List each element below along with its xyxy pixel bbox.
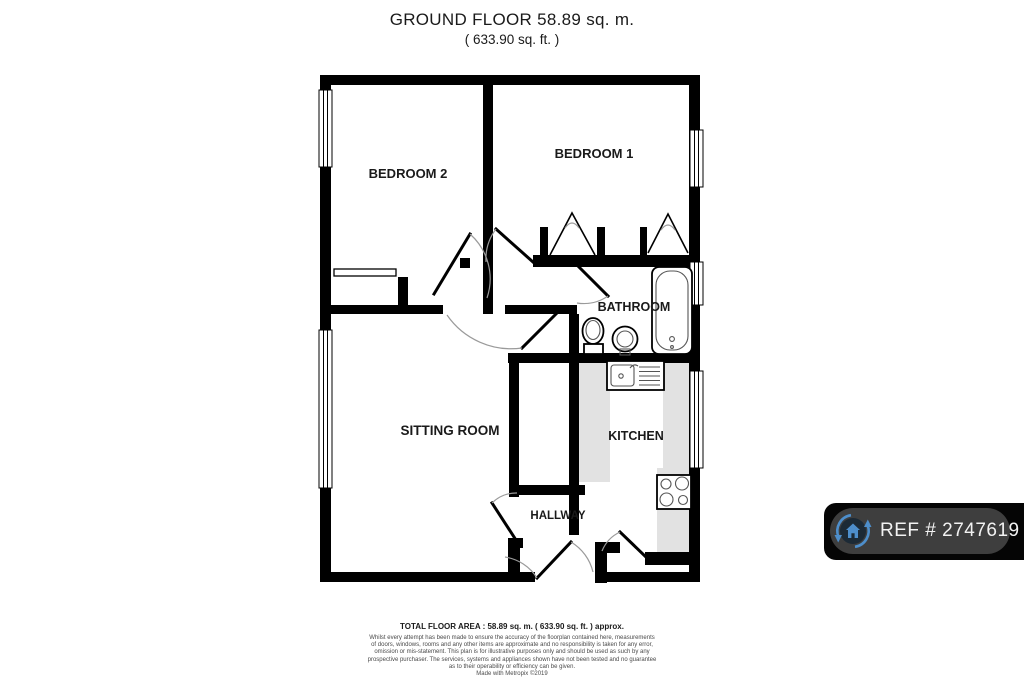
disclaimer-line: of doors, windows, rooms and any other i… bbox=[0, 642, 1024, 649]
doors bbox=[434, 229, 646, 578]
floorplan-page: BEDROOM 2 BEDROOM 1 BATHROOM SITTING ROO… bbox=[0, 0, 1024, 682]
wardrobe-icons bbox=[550, 213, 688, 255]
sitting-room-label: SITTING ROOM bbox=[401, 423, 500, 438]
house-sync-icon bbox=[833, 511, 873, 551]
toilet-icon bbox=[583, 318, 604, 354]
bathroom-door bbox=[577, 266, 608, 304]
window-kitchen bbox=[690, 371, 703, 468]
window-bedroom2 bbox=[319, 90, 332, 167]
disclaimer-line: Made with Metropix ©2019 bbox=[0, 671, 1024, 678]
sink-unit-icon bbox=[607, 361, 664, 390]
disclaimer-line: prospective purchaser. The services, sys… bbox=[0, 657, 1024, 664]
disclaimer: Whilst every attempt has been made to en… bbox=[0, 635, 1024, 678]
disclaimer-line: Whilst every attempt has been made to en… bbox=[0, 635, 1024, 642]
sitting-room-hall-door bbox=[492, 493, 517, 540]
sitting-room-inner-door bbox=[447, 312, 558, 349]
hob-icon bbox=[657, 475, 691, 509]
window-sitting-room bbox=[319, 330, 332, 488]
plan-footer: TOTAL FLOOR AREA : 58.89 sq. m. ( 633.90… bbox=[0, 622, 1024, 678]
ref-badge: REF # 2747619 bbox=[824, 503, 1024, 560]
disclaimer-line: omission or mis-statement. This plan is … bbox=[0, 649, 1024, 656]
window-bedroom1 bbox=[690, 130, 703, 187]
basin-icon bbox=[613, 327, 638, 356]
bedroom2-label: BEDROOM 2 bbox=[369, 166, 448, 181]
walls bbox=[320, 75, 700, 583]
bedroom1-label: BEDROOM 1 bbox=[555, 146, 634, 161]
plan-title-line2: ( 633.90 sq. ft. ) bbox=[0, 32, 1024, 47]
plan-title: GROUND FLOOR 58.89 sq. m. ( 633.90 sq. f… bbox=[0, 10, 1024, 47]
kitchen-label: KITCHEN bbox=[608, 429, 664, 443]
hallway-label: HALLWAY bbox=[530, 510, 585, 522]
disclaimer-line: as to their operability or efficiency ca… bbox=[0, 664, 1024, 671]
cupboard bbox=[334, 269, 396, 276]
ref-badge-pill: REF # 2747619 bbox=[830, 508, 1010, 554]
floorplan-drawing: BEDROOM 2 BEDROOM 1 BATHROOM SITTING ROO… bbox=[0, 0, 1024, 682]
total-floor-area: TOTAL FLOOR AREA : 58.89 sq. m. ( 633.90… bbox=[0, 622, 1024, 631]
bathroom-label: BATHROOM bbox=[598, 300, 671, 314]
ref-number: REF # 2747619 bbox=[880, 520, 1020, 542]
plan-title-line1: GROUND FLOOR 58.89 sq. m. bbox=[0, 10, 1024, 30]
